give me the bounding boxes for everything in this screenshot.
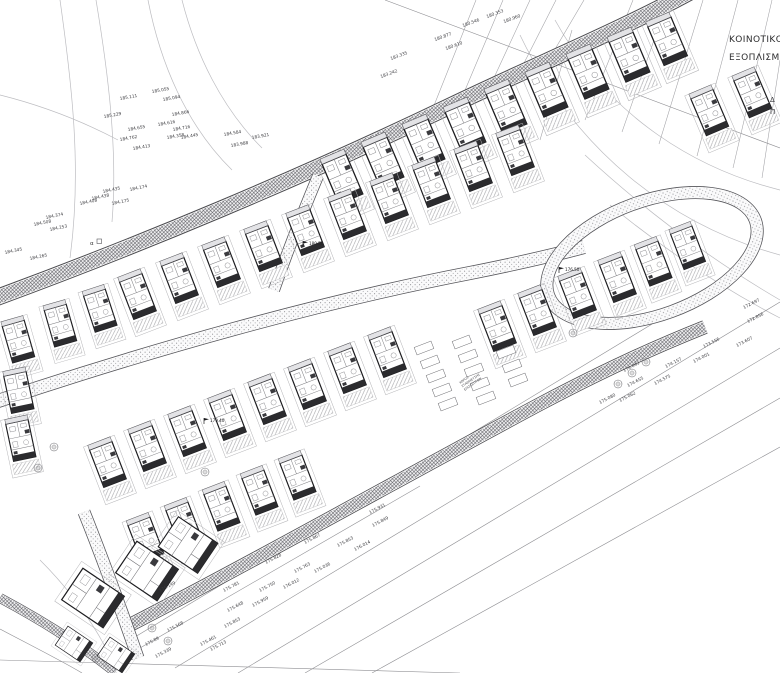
house-footprint (685, 83, 740, 153)
site-plan-drawing: 185.111185.055185.094185.229184.866184.6… (0, 0, 780, 673)
spot-elevation-label: 184.508 (33, 218, 52, 228)
spot-elevation-label: 175.062 (618, 390, 637, 404)
spot-elevation-label: 180.610 (445, 40, 464, 52)
contour-line (182, 0, 262, 148)
tree-symbol (50, 443, 58, 451)
house-footprint (641, 10, 698, 83)
house-footprint (113, 267, 166, 337)
alpha-survey-marker-label: α (90, 241, 94, 247)
parking-stall (508, 373, 528, 387)
tree-symbol (201, 468, 209, 476)
spot-elevation-label: 180.960 (503, 13, 522, 25)
contour-line (148, 0, 232, 170)
spot-elevation-label: 175.853 (223, 616, 242, 630)
parking-stalls-layer (414, 335, 528, 411)
tree-symbol (148, 624, 156, 632)
spot-elevation-label: 184.584 (223, 129, 242, 138)
spot-elevation-label: 184.413 (132, 143, 151, 152)
spot-elevation-label: 174.575 (653, 373, 672, 387)
contour-line (60, 0, 75, 258)
tree-symbol (92, 654, 100, 662)
parking-stall (420, 355, 440, 369)
spot-elevation-label: 185.094 (162, 94, 181, 103)
edge-partial-label-2: Π (770, 108, 775, 116)
spot-elevation-label: 184.762 (119, 134, 138, 143)
house-footprint (407, 155, 460, 225)
spot-elevation-label: 184.253 (49, 223, 68, 233)
spot-elevation-label: 175.036 (313, 561, 332, 575)
spot-elevation-label: 173.556 (702, 336, 721, 350)
spot-elevation-label: 175.339 (154, 646, 173, 660)
spot-elevation-label: 184.716 (172, 124, 191, 133)
site-plan-canvas: 185.111185.055185.094185.229184.866184.6… (0, 0, 780, 673)
house-footprint (155, 251, 208, 321)
house-footprint (323, 341, 376, 411)
spot-elevation-label: 175.763 (293, 561, 312, 575)
house-footprint (197, 235, 250, 305)
parking-stall (438, 397, 458, 411)
spot-elevation-label: 175.568 (166, 620, 185, 634)
tree-symbol (614, 380, 622, 388)
spot-elevation-label: 175.89 (144, 635, 160, 647)
house-footprint (593, 250, 646, 320)
spot-elevation-label: 175.931 (368, 502, 387, 516)
spot-elevation-label: 183.242 (380, 68, 399, 80)
spot-elevation-label: 184.616 (157, 119, 176, 128)
bottom-road (128, 327, 705, 626)
contour-line (0, 95, 118, 140)
spot-elevation-label: 175.080 (598, 392, 617, 406)
spot-elevation-label: 184.408 (79, 197, 98, 207)
spot-elevation-label: 185.229 (103, 111, 122, 120)
house-footprint (39, 298, 85, 363)
spot-elevation-label: 175.648 (226, 600, 245, 614)
parking-stall (452, 335, 472, 349)
parcel-boundary-line (305, 398, 780, 673)
community-facility-label-line2: ΕΞΟΠΛΙΣΜ (729, 53, 780, 63)
spot-elevation-label: 180.877 (434, 31, 453, 43)
parcel-boundary-line (372, 447, 780, 673)
spot-elevation-label: 175.750 (258, 580, 277, 594)
spot-elevation-label: 176.012 (282, 577, 301, 591)
parking-stall (476, 391, 496, 405)
spot-elevation-label: 184.655 (127, 124, 146, 133)
spot-elevation-label: 184.265 (29, 252, 48, 262)
flag-icon (559, 267, 564, 273)
spot-elevation-label: 174.655 (626, 375, 645, 389)
spot-elevation-label: 174.157 (664, 356, 683, 370)
spot-elevation-label: 185.111 (119, 93, 138, 102)
spot-elevation-label: 184.174 (129, 183, 148, 193)
spot-elevation-label: 172.697 (742, 297, 761, 311)
spot-elevation-label: 173.607 (735, 335, 754, 349)
tree-symbol (164, 637, 172, 645)
community-facility-label-line1: ΚΟΙΝΟΤΙΚΟ (729, 35, 780, 45)
spot-elevation-label: 184.866 (171, 109, 190, 118)
house-footprint (1, 414, 44, 478)
edge-partial-label-1: Δ (770, 96, 775, 104)
spot-elevation-label: 183.335 (390, 50, 409, 62)
house-footprint (491, 123, 544, 193)
spot-elevation-label: 172.856 (746, 311, 765, 325)
spot-elevation-label: 183.921 (251, 132, 270, 141)
house-footprint (513, 283, 566, 353)
house-footprint (363, 325, 416, 395)
spot-elevation-label: 183.988 (230, 140, 249, 149)
house-footprint (323, 187, 376, 257)
contour-line (520, 35, 780, 255)
spot-elevation-label: 184.175 (111, 197, 130, 207)
parking-stall (458, 349, 478, 363)
spot-elevation-label: 180.546 (462, 17, 481, 29)
spot-elevation-label: 184.345 (4, 246, 23, 256)
tree-symbol (34, 464, 42, 472)
flag-icon (204, 418, 209, 424)
house-footprint (203, 388, 256, 458)
tree-symbol (569, 329, 577, 337)
spot-elevation-label: 175.849 (371, 515, 390, 529)
spot-elevation-label: 175.853 (336, 535, 355, 549)
spot-elevation-label: 185.055 (151, 86, 170, 95)
house-footprint (274, 449, 326, 517)
level-flag-label: 179.40 (210, 418, 225, 423)
parcel-boundary-line (0, 660, 460, 673)
survey-marker-square (97, 239, 102, 244)
spot-elevation-label: 175.959 (251, 595, 270, 609)
level-flag-label: 180.50 (309, 241, 324, 246)
tree-symbol (642, 358, 650, 366)
parking-stall (414, 341, 434, 355)
house-footprint (83, 435, 136, 505)
level-flag-label: 176.50 (565, 267, 580, 272)
parking-stall (426, 369, 446, 383)
house-footprint (521, 60, 580, 136)
parking-stall (432, 383, 452, 397)
house-footprint (236, 464, 288, 532)
